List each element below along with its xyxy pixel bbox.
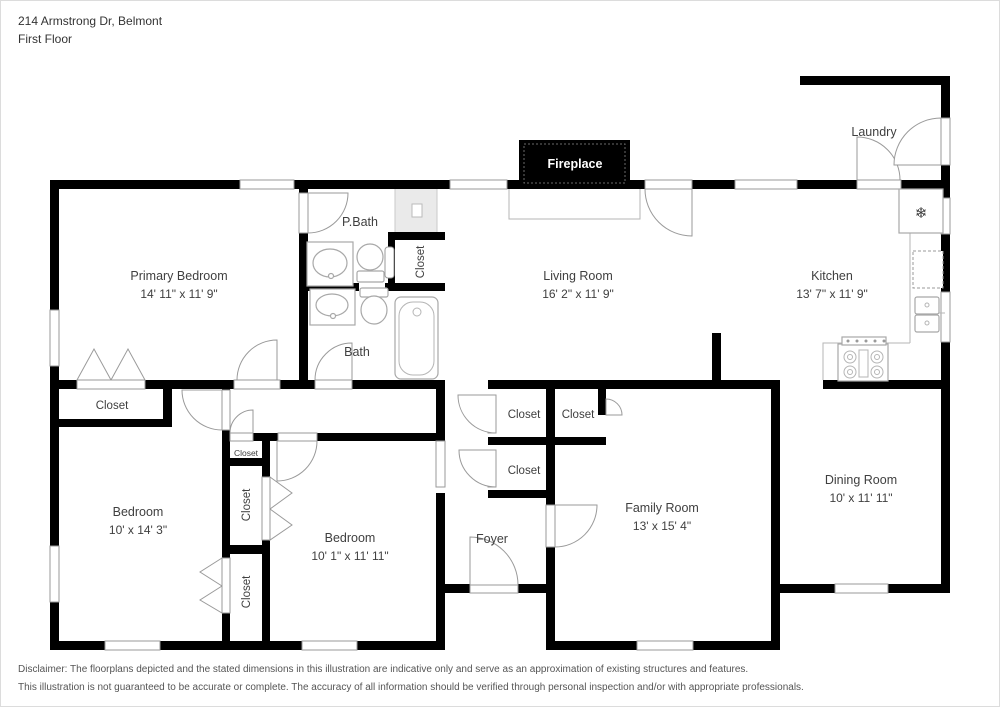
floorplan-page: 214 Armstrong Dr, Belmont First Floor xyxy=(0,0,1000,707)
wall xyxy=(222,433,445,441)
wall xyxy=(546,388,555,505)
hall-closet3-label: Closet xyxy=(508,465,541,477)
bath-label: Bath xyxy=(344,345,370,359)
kitchen-label: Kitchen xyxy=(811,269,853,283)
bath-sink xyxy=(316,294,348,316)
stove-knob xyxy=(856,340,859,343)
stove-knob xyxy=(883,340,886,343)
bedroom-closet-small-label: Closet xyxy=(234,448,259,458)
wall xyxy=(222,458,270,466)
window xyxy=(941,292,950,342)
floorplan-canvas: 214 Armstrong Dr, Belmont First Floor xyxy=(0,0,1000,707)
fireplace: Fireplace xyxy=(519,140,630,187)
small-closet-door-leaf xyxy=(230,433,253,441)
bathtub xyxy=(395,297,438,379)
kitchen-sink-upper xyxy=(915,297,939,314)
bath-toilet-bowl xyxy=(361,296,387,324)
family-room-door-leaf xyxy=(546,505,555,547)
laundry-label: Laundry xyxy=(851,125,897,139)
hall-opening-leaf xyxy=(436,441,445,487)
wall xyxy=(488,490,554,498)
window xyxy=(50,546,59,602)
laundry-exterior-door-leaf xyxy=(941,118,950,165)
wall xyxy=(800,76,950,85)
dining-room-label: Dining Room xyxy=(825,473,897,487)
bedroom-middle-door-leaf xyxy=(278,433,317,441)
bedroom-middle-label: Bedroom xyxy=(325,531,376,545)
primary-bedroom-dims: 14' 11" x 11' 9" xyxy=(140,287,217,301)
disclaimer-line2: This illustration is not guaranteed to b… xyxy=(18,682,804,693)
laundry-door-leaf xyxy=(857,180,901,189)
kitchen-sink-lower xyxy=(915,315,939,332)
window xyxy=(835,584,888,593)
dishwasher xyxy=(913,251,943,288)
bath-sink-drain xyxy=(331,314,336,319)
window xyxy=(735,180,797,189)
disclaimer-line1: Disclaimer: The floorplans depicted and … xyxy=(18,664,748,675)
pbath-toilet-tank xyxy=(357,271,384,282)
stove-knob xyxy=(847,340,850,343)
bedroom-left-dims: 10' x 14' 3" xyxy=(109,523,167,537)
family-room-dims: 13' x 15' 4" xyxy=(633,519,691,533)
bedroom-closet-lower-label: Closet xyxy=(241,575,253,608)
stove-knob xyxy=(865,340,868,343)
hall-closet2-label: Closet xyxy=(562,409,595,421)
pbath-door-leaf xyxy=(299,193,308,233)
address-title: 214 Armstrong Dr, Belmont xyxy=(18,14,163,28)
shower-drain xyxy=(412,204,422,217)
family-room-label: Family Room xyxy=(625,501,699,515)
closet-upper-bifold-gap xyxy=(262,477,270,540)
bath-door-leaf xyxy=(315,380,352,389)
fireplace-label: Fireplace xyxy=(548,157,603,171)
living-room-dims: 16' 2" x 11' 9" xyxy=(542,287,614,301)
floor-subtitle: First Floor xyxy=(18,32,72,46)
hall-closet1-label: Closet xyxy=(508,409,541,421)
bath-closet-label: Closet xyxy=(415,245,427,278)
window xyxy=(105,641,160,650)
closet-lower-bifold-gap xyxy=(222,558,230,613)
living-room-rear-door-leaf xyxy=(645,180,692,189)
wall xyxy=(385,283,445,291)
bedroom-left-label: Bedroom xyxy=(113,505,164,519)
refrigerator-icon: ❄ xyxy=(915,205,928,222)
wall xyxy=(488,380,780,389)
stove-knob xyxy=(874,340,877,343)
bedroom-left-door-leaf xyxy=(222,390,230,430)
window xyxy=(637,641,693,650)
wall xyxy=(712,333,721,389)
pbath-sink xyxy=(313,249,347,277)
living-room-label: Living Room xyxy=(543,269,612,283)
wall xyxy=(50,419,172,427)
wall xyxy=(488,437,606,445)
primary-closet-bifold-gap xyxy=(77,380,145,389)
primary-bedroom-door-leaf xyxy=(234,380,280,389)
bath-closet-door xyxy=(385,247,394,278)
wall xyxy=(436,493,445,650)
bedroom-middle-dims: 10' 1" x 11' 11" xyxy=(311,549,388,563)
wall xyxy=(598,389,606,415)
wall xyxy=(771,382,780,650)
pbath-label: P.Bath xyxy=(342,215,378,229)
foyer-label: Foyer xyxy=(476,532,508,546)
window xyxy=(240,180,294,189)
wall xyxy=(222,545,270,554)
primary-bedroom-label: Primary Bedroom xyxy=(130,269,227,283)
wall xyxy=(546,547,555,650)
window xyxy=(50,310,59,366)
pbath-toilet-bowl xyxy=(357,244,383,270)
dining-room-dims: 10' x 11' 11" xyxy=(829,491,892,505)
kitchen-dims: 13' 7" x 11' 9" xyxy=(796,287,868,301)
wall xyxy=(388,232,445,240)
window xyxy=(302,641,357,650)
hall-closet2-opening xyxy=(598,415,606,425)
window xyxy=(450,180,507,189)
pbath-sink-drain xyxy=(329,274,334,279)
primary-closet-label: Closet xyxy=(96,400,129,412)
bedroom-closet-upper-label: Closet xyxy=(241,488,253,521)
